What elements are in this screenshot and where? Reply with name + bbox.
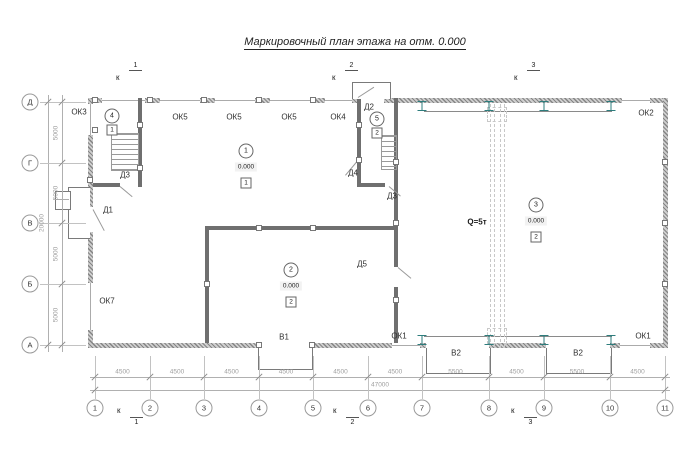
wall-segment [357,183,385,187]
dimension-label: 4500 [224,369,238,376]
window-opening [392,345,420,346]
drawing-title: Маркировочный план этажа на отм. 0.000 [175,36,535,48]
window-opening [90,104,91,135]
column-marker [201,97,207,103]
section-letter: к [332,73,336,82]
dimension-line [48,95,49,352]
steel-column-icon [540,335,549,345]
steel-column-icon [418,101,427,111]
door-label: Д2 [364,103,374,112]
gate-ramp [258,348,313,370]
room-number-marker: 2 [284,263,299,278]
gate-label: В1 [279,333,289,342]
window-label: ОК7 [99,297,114,306]
dimension-total-label: 20000 [39,214,46,232]
column-marker [662,220,668,226]
section-mark: к2 [332,62,358,82]
crane-rail [424,111,612,112]
wall-segment [395,98,622,103]
axis-marker: 4 [251,400,268,417]
gate-label: В2 [451,349,461,358]
section-mark: к2 [333,406,359,426]
column-marker [356,157,362,163]
window-label: ОК2 [638,109,653,118]
wall-segment [88,343,258,348]
section-letter: к [511,406,515,415]
window-label: ОК3 [71,108,86,117]
window-label: ОК5 [226,113,241,122]
dimension-label: 5000 [53,246,60,260]
window-opening [215,100,255,101]
window-label: ОК5 [172,113,187,122]
section-number: 1 [129,62,142,71]
column-marker [310,97,316,103]
section-letter: к [117,406,121,415]
section-letter: к [333,406,337,415]
wall-segment [93,183,120,187]
door-swing [398,267,412,279]
gate-label: В2 [573,349,583,358]
room-elevation: 0.000 [235,163,257,172]
axis-marker: 11 [657,400,674,417]
steel-column-icon [418,335,427,345]
door-swing [120,186,133,197]
dimension-label: 4500 [388,369,402,376]
wall-segment [88,330,93,348]
dimension-line [90,390,670,391]
crane-label: Q=5т [467,218,486,227]
column-marker [393,159,399,165]
dimension-label: 5500 [448,369,462,376]
dimension-label: 4500 [509,369,523,376]
dimension-label: 5000 [53,307,60,321]
axis-marker: Г [22,155,39,172]
window-opening [622,100,650,101]
section-mark: к3 [514,62,540,82]
dimension-label: 4500 [170,369,184,376]
section-number: 2 [345,62,358,71]
door-label: Д3 [387,192,397,201]
window-opening [620,345,650,346]
room-number-marker: 3 [529,198,544,213]
dimension-label: 4500 [630,369,644,376]
crane-track-dashed [490,104,491,347]
section-mark: к1 [117,406,143,426]
axis-marker: 9 [536,400,553,417]
column-marker [393,297,399,303]
column-marker [393,220,399,226]
door-label: Д5 [357,260,367,269]
stairs [111,133,139,171]
dimension-label: 5000 [53,125,60,139]
column-marker [92,127,98,133]
column-marker [256,97,262,103]
axis-marker: 5 [305,400,322,417]
door-label: Д3 [120,171,130,180]
crane-track-dashed [500,104,501,347]
column-marker [92,97,98,103]
room-finish-marker: 1 [107,125,118,136]
window-label: ОК4 [330,113,345,122]
crane-track-dashed [504,104,505,347]
room-number-marker: 5 [370,112,385,127]
window-opening [325,100,352,101]
section-number: 3 [524,417,537,426]
column-marker [662,281,668,287]
room-finish-marker: 2 [372,128,383,139]
door-label: Д4 [348,169,358,178]
window-opening [160,100,200,101]
crane-track-dashed [494,104,495,347]
entrance-porch [68,187,90,239]
floor-plan-canvas: Маркировочный план этажа на отм. 0.000 4… [0,0,700,474]
wall-segment [310,343,392,348]
section-letter: к [514,73,518,82]
room-number-marker: 1 [239,144,254,159]
section-letter: к [116,73,120,82]
axis-marker: В [22,215,39,232]
window-label: ОК5 [281,113,296,122]
room-finish-marker: 1 [241,178,252,189]
axis-marker: Д [22,94,39,111]
axis-marker: 3 [196,400,213,417]
room-elevation: 0.000 [525,217,547,226]
column-marker [256,225,262,231]
room-finish-marker: 2 [531,232,542,243]
steel-column-icon [485,335,494,345]
axis-marker: 10 [602,400,619,417]
axis-marker: 8 [481,400,498,417]
wall-segment [394,98,398,267]
steel-column-icon [540,101,549,111]
dimension-label: 4500 [279,369,293,376]
column-marker [137,165,143,171]
axis-marker: 1 [87,400,104,417]
column-marker [147,97,153,103]
steel-column-icon [607,101,616,111]
wall-segment [205,226,398,230]
dimension-total-label: 47000 [371,382,389,389]
crane-rail [424,336,612,337]
room-finish-marker: 2 [286,297,297,308]
section-mark: к3 [511,406,537,426]
axis-marker: 2 [142,400,159,417]
column-marker [309,342,315,348]
dimension-label: 5500 [570,369,584,376]
dimension-line [90,377,670,378]
column-marker [204,281,210,287]
window-opening [90,283,91,330]
dimension-label: 4500 [115,369,129,376]
steel-column-icon [485,101,494,111]
window-opening [270,100,310,101]
column-marker [356,122,362,128]
column-marker [87,177,93,183]
dimension-label: 5000 [53,186,60,200]
column-marker [137,122,143,128]
section-mark: к1 [116,62,142,82]
room-number-marker: 4 [105,109,120,124]
window-label: ОК1 [635,332,650,341]
axis-marker: Б [22,276,39,293]
section-number: 1 [130,417,143,426]
window-label: ОК1 [391,332,406,341]
room-elevation: 0.000 [280,282,302,291]
axis-marker: 7 [414,400,431,417]
wall-segment [88,232,93,283]
axis-marker: А [22,337,39,354]
column-marker [662,159,668,165]
axis-marker: 6 [360,400,377,417]
steel-column-icon [607,335,616,345]
dimension-label: 4500 [333,369,347,376]
section-number: 3 [527,62,540,71]
column-marker [256,342,262,348]
door-label: Д1 [103,206,113,215]
section-number: 2 [346,417,359,426]
column-marker [310,225,316,231]
